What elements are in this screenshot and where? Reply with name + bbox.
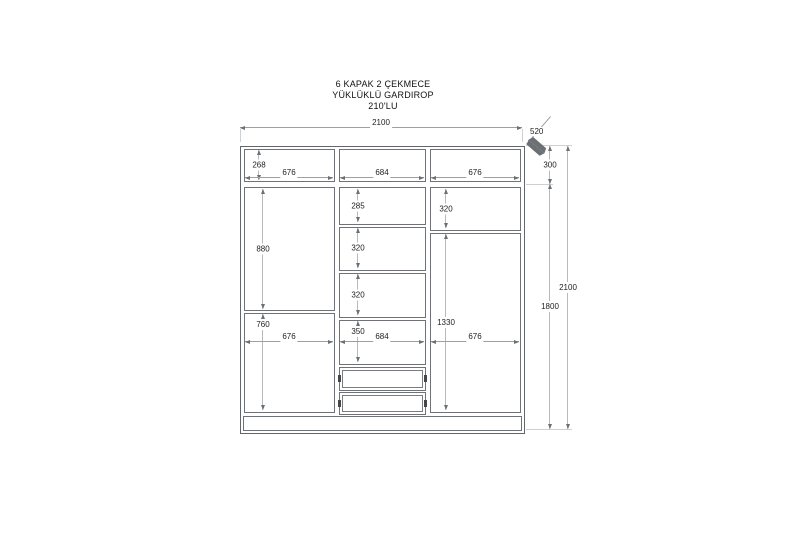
- dim-label: 684: [373, 168, 390, 178]
- arrow-left-icon: [340, 176, 345, 180]
- dim-label: 2100: [557, 282, 579, 293]
- arrow-left-icon: [240, 126, 245, 130]
- dim-label: 320: [349, 243, 366, 254]
- drawer-upper-slide-left: [338, 375, 341, 382]
- drawing-title: 6 KAPAK 2 ÇEKMECE YÜKLÜKLÜ GARDIROP 210'…: [240, 79, 526, 112]
- arrow-up-icon: [356, 274, 360, 279]
- arrow-right-icon: [419, 340, 424, 344]
- dim-label: 1800: [539, 301, 561, 312]
- title-line-2: YÜKLÜKLÜ GARDIROP: [240, 90, 526, 101]
- dim-topmid-width: 684: [340, 177, 424, 178]
- dim-right-door-width: 676: [431, 341, 519, 342]
- drawer-upper: [339, 367, 426, 391]
- drawing-canvas: 6 KAPAK 2 ÇEKMECE YÜKLÜKLÜ GARDIROP 210'…: [0, 0, 800, 533]
- arrow-left-icon: [431, 340, 436, 344]
- dim-label: 300: [541, 160, 558, 171]
- arrow-right-icon: [514, 176, 519, 180]
- arrow-up-icon: [548, 184, 552, 189]
- dim-left-door-width: 676: [245, 341, 333, 342]
- dim-topleft-width: 676: [245, 177, 333, 178]
- dim-right-lower-height: 1330: [445, 234, 446, 410]
- dim-label: 268: [250, 160, 267, 171]
- dim-topright-width: 676: [431, 177, 519, 178]
- arrow-down-icon: [356, 310, 360, 315]
- drawer-lower-front: [342, 395, 423, 412]
- title-line-1: 6 KAPAK 2 ÇEKMECE: [240, 79, 526, 90]
- dim-label: 676: [280, 168, 297, 178]
- dim-label: 1330: [435, 317, 457, 328]
- dim-label: 676: [466, 332, 483, 342]
- arrow-left-icon: [245, 340, 250, 344]
- arrow-down-icon: [444, 223, 448, 228]
- plinth-base: [243, 416, 522, 431]
- drawer-upper-slide-right: [424, 375, 427, 382]
- arrow-up-icon: [257, 150, 261, 155]
- dim-mid-width: 684: [340, 341, 424, 342]
- dim-topleft-inner-height: 268: [258, 150, 259, 180]
- dim-label: 676: [280, 332, 297, 342]
- drawer-upper-front: [342, 370, 423, 388]
- dim-label: 684: [373, 332, 390, 342]
- extension-line: [240, 129, 241, 142]
- arrow-down-icon: [356, 217, 360, 222]
- arrow-down-icon: [261, 304, 265, 309]
- arrow-right-icon: [328, 176, 333, 180]
- dim-left-upper-height: 880: [262, 189, 263, 309]
- drawer-lower-slide-left: [338, 400, 341, 407]
- dim-label: 285: [349, 200, 366, 211]
- dim-body-height: 1800: [549, 184, 550, 429]
- arrow-up-icon: [548, 146, 552, 151]
- dim-mid-shelf2-height: 320: [357, 228, 358, 268]
- dim-mid-shelf1-height: 285: [357, 189, 358, 222]
- arrow-right-icon: [514, 340, 519, 344]
- arrow-down-icon: [261, 405, 265, 410]
- arrow-down-icon: [356, 263, 360, 268]
- extension-line: [522, 129, 523, 142]
- dim-overall-height: 2100: [567, 146, 568, 429]
- arrow-down-icon: [548, 424, 552, 429]
- arrow-up-icon: [566, 146, 570, 151]
- dim-depth-label: 520: [529, 127, 544, 136]
- dim-overall-width: 2100: [240, 127, 522, 128]
- dim-label: 350: [349, 326, 366, 337]
- dim-left-lower-height: 760: [262, 314, 263, 410]
- dim-label: 880: [254, 244, 271, 255]
- arrow-right-icon: [517, 126, 522, 130]
- extension-line: [526, 429, 572, 430]
- drawer-lower: [339, 392, 426, 415]
- arrow-up-icon: [261, 189, 265, 194]
- arrow-up-icon: [356, 189, 360, 194]
- dim-label: 760: [254, 319, 271, 330]
- title-line-3: 210'LU: [240, 101, 526, 112]
- arrow-up-icon: [356, 228, 360, 233]
- arrow-left-icon: [245, 176, 250, 180]
- arrow-right-icon: [419, 176, 424, 180]
- arrow-left-icon: [340, 340, 345, 344]
- arrow-up-icon: [444, 189, 448, 194]
- drawer-lower-slide-right: [424, 400, 427, 407]
- dim-label: 320: [349, 289, 366, 300]
- dim-mid-shelf3-height: 320: [357, 274, 358, 315]
- arrow-right-icon: [328, 340, 333, 344]
- arrow-down-icon: [444, 405, 448, 410]
- dim-overall-width-label: 2100: [370, 118, 392, 128]
- arrow-down-icon: [356, 357, 360, 362]
- arrow-left-icon: [431, 176, 436, 180]
- dim-right-upper-height: 320: [445, 189, 446, 228]
- dim-label: 676: [466, 168, 483, 178]
- arrow-down-icon: [566, 424, 570, 429]
- dim-label: 320: [437, 203, 454, 214]
- dim-top-section-height: 300: [549, 146, 550, 184]
- arrow-up-icon: [444, 234, 448, 239]
